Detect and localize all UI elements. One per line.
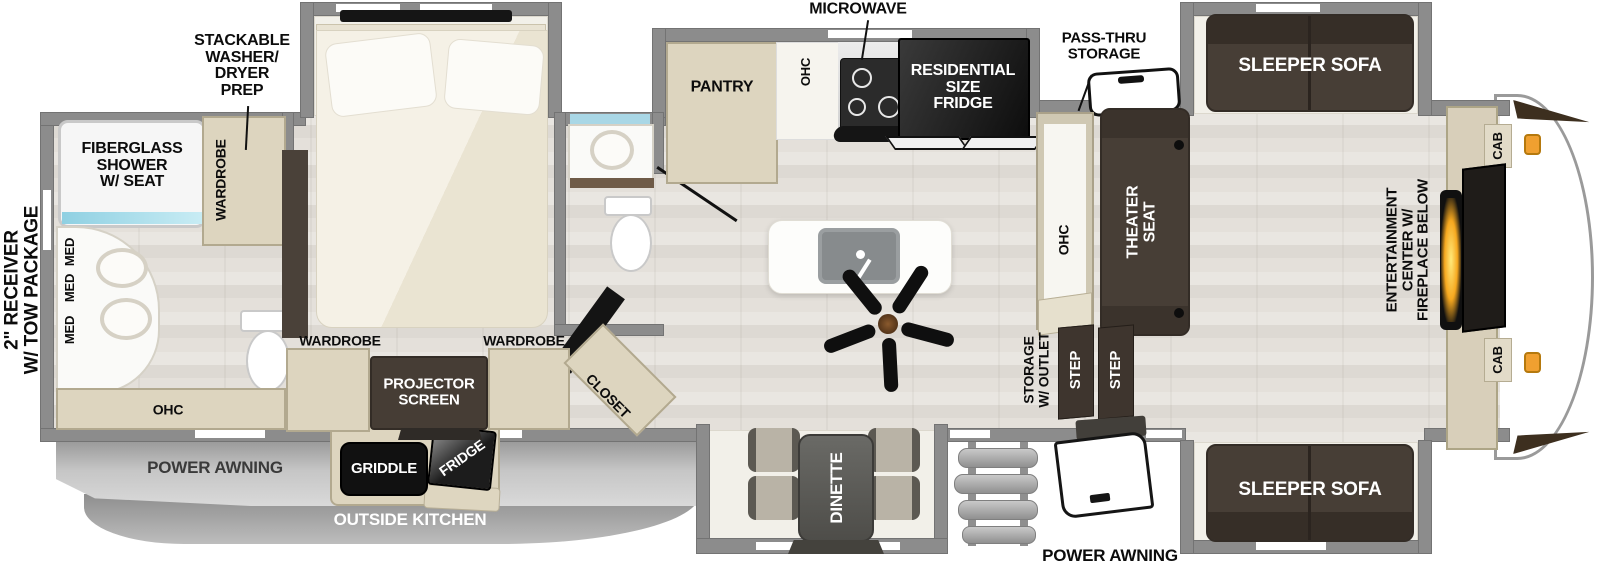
- toilet-bowl: [246, 330, 290, 392]
- med-label: MED: [63, 274, 77, 302]
- fiberglass-label: FIBERGLASS SHOWER W/ SEAT: [81, 141, 182, 191]
- window: [195, 430, 265, 438]
- sleeper-sofa-top-label: SLEEPER SOFA: [1238, 56, 1381, 76]
- fridge-door-open: [885, 136, 969, 150]
- step-label-2: STEP: [1108, 351, 1124, 389]
- window: [1256, 4, 1320, 12]
- residential-fridge-label: RESIDENTIAL SIZE FRIDGE: [911, 63, 1015, 113]
- ceiling-fan-blade: [882, 338, 899, 393]
- sink: [590, 130, 634, 170]
- burner: [852, 68, 872, 88]
- sofa-bottom-slide-wall-left: [1180, 440, 1194, 554]
- sofa-top-slide-wall-left: [1180, 2, 1194, 116]
- island-faucet: [856, 250, 865, 259]
- projector-label: PROJECTOR SCREEN: [383, 376, 474, 407]
- theater-seat-label: THEATER SEAT: [1125, 186, 1158, 259]
- griddle-label: GRIDDLE: [351, 461, 417, 477]
- pantry-cabinet: [666, 42, 778, 184]
- dinette-mat: [788, 540, 884, 554]
- wall-rear: [40, 112, 54, 442]
- pillow: [443, 38, 545, 116]
- kitchen-ohc-label: OHC: [799, 58, 813, 86]
- bed-slide-wall-right: [548, 2, 562, 118]
- dinette-slide-wall-right: [934, 424, 948, 550]
- stackable-label: STACKABLE WASHER/ DRYER PREP: [194, 33, 290, 100]
- dinette-chair: [748, 428, 800, 472]
- dinette-chair: [748, 476, 800, 520]
- ceiling-fan-hub: [878, 314, 898, 334]
- wardrobe-left-label: WARDROBE: [299, 334, 381, 349]
- toilet-bowl: [610, 214, 652, 272]
- passthru-label: PASS-THRU STORAGE: [1062, 30, 1147, 61]
- sleeper-sofa-bottom-label: SLEEPER SOFA: [1238, 480, 1381, 500]
- sofa-bottom-slide-wall-right: [1418, 440, 1432, 554]
- bed-slide-wall-left: [300, 2, 314, 118]
- marker-light-bottom: [1524, 352, 1541, 373]
- cab-top-label: CAB: [1491, 132, 1505, 160]
- med-label: MED: [63, 316, 77, 344]
- kitchen-counter-ohc: [776, 42, 842, 140]
- sink: [100, 298, 152, 340]
- projector-mat: [398, 428, 482, 440]
- entry-step: [962, 526, 1036, 544]
- sofa-top-slide-wall-right: [1418, 2, 1432, 116]
- pantry-label: PANTRY: [691, 80, 754, 97]
- microwave-label: MICROWAVE: [809, 2, 906, 19]
- rv-floorplan: 2" RECEIVER W/ TOW PACKAGE STACKABLE WAS…: [0, 0, 1600, 570]
- rear-ohc-label: OHC: [153, 403, 184, 418]
- window: [43, 190, 51, 250]
- right-ohc-label: OHC: [1057, 225, 1072, 256]
- entry-step: [958, 448, 1038, 468]
- kitchen-slide-wall-left: [652, 28, 666, 118]
- sink: [96, 248, 148, 288]
- power-awning-left-label: POWER AWNING: [147, 459, 283, 477]
- rear-wardrobe-label: WARDROBE: [214, 139, 229, 221]
- pillow: [324, 32, 438, 118]
- entertainment-label: ENTERTAINMENT CENTER W/ FIREPLACE BELOW: [1385, 179, 1432, 321]
- bedroom-tv: [340, 10, 512, 22]
- outside-kitchen-label: OUTSIDE KITCHEN: [334, 511, 487, 529]
- fireplace-glow: [1441, 198, 1461, 322]
- fridge-door-open: [961, 136, 1045, 150]
- ohc-counter-top: [1044, 124, 1086, 304]
- midbath-shelf: [570, 178, 654, 188]
- dinette-slide-wall-left: [696, 424, 710, 550]
- med-label: MED: [63, 238, 77, 266]
- window: [828, 30, 912, 38]
- step-label-1: STEP: [1068, 351, 1084, 389]
- theater-seat-back: [1102, 110, 1188, 138]
- wardrobe-cabinet-right: [488, 348, 570, 430]
- wall-midbath-left: [554, 112, 566, 336]
- entertainment-tv: [1462, 163, 1506, 332]
- toilet-tank: [604, 196, 652, 216]
- wardrobe-right-label: WARDROBE: [483, 334, 565, 349]
- entry-step: [958, 500, 1038, 520]
- window: [1256, 542, 1326, 550]
- theater-seat-bolt: [1174, 140, 1184, 150]
- bedroom-dresser: [282, 150, 308, 338]
- dinette-chair: [868, 476, 920, 520]
- power-awning-right-label: POWER AWNING: [1042, 547, 1178, 565]
- storage-outlet-label: STORAGE W/ OUTLET: [1021, 332, 1050, 407]
- burner: [848, 98, 866, 116]
- receiver-label: 2" RECEIVER W/ TOW PACKAGE: [2, 140, 42, 440]
- shower-glass: [62, 212, 202, 224]
- marker-light-top: [1524, 134, 1541, 155]
- theater-seat-bolt: [1174, 308, 1184, 318]
- entry-step: [954, 474, 1038, 494]
- window: [1146, 430, 1182, 438]
- dinette-label: DINETTE: [828, 452, 846, 523]
- window: [950, 430, 990, 438]
- entry-door: [1054, 431, 1155, 520]
- dinette-chair: [868, 428, 920, 472]
- burner: [878, 96, 900, 118]
- wardrobe-cabinet-left: [286, 348, 370, 432]
- cab-bottom-label: CAB: [1491, 346, 1505, 374]
